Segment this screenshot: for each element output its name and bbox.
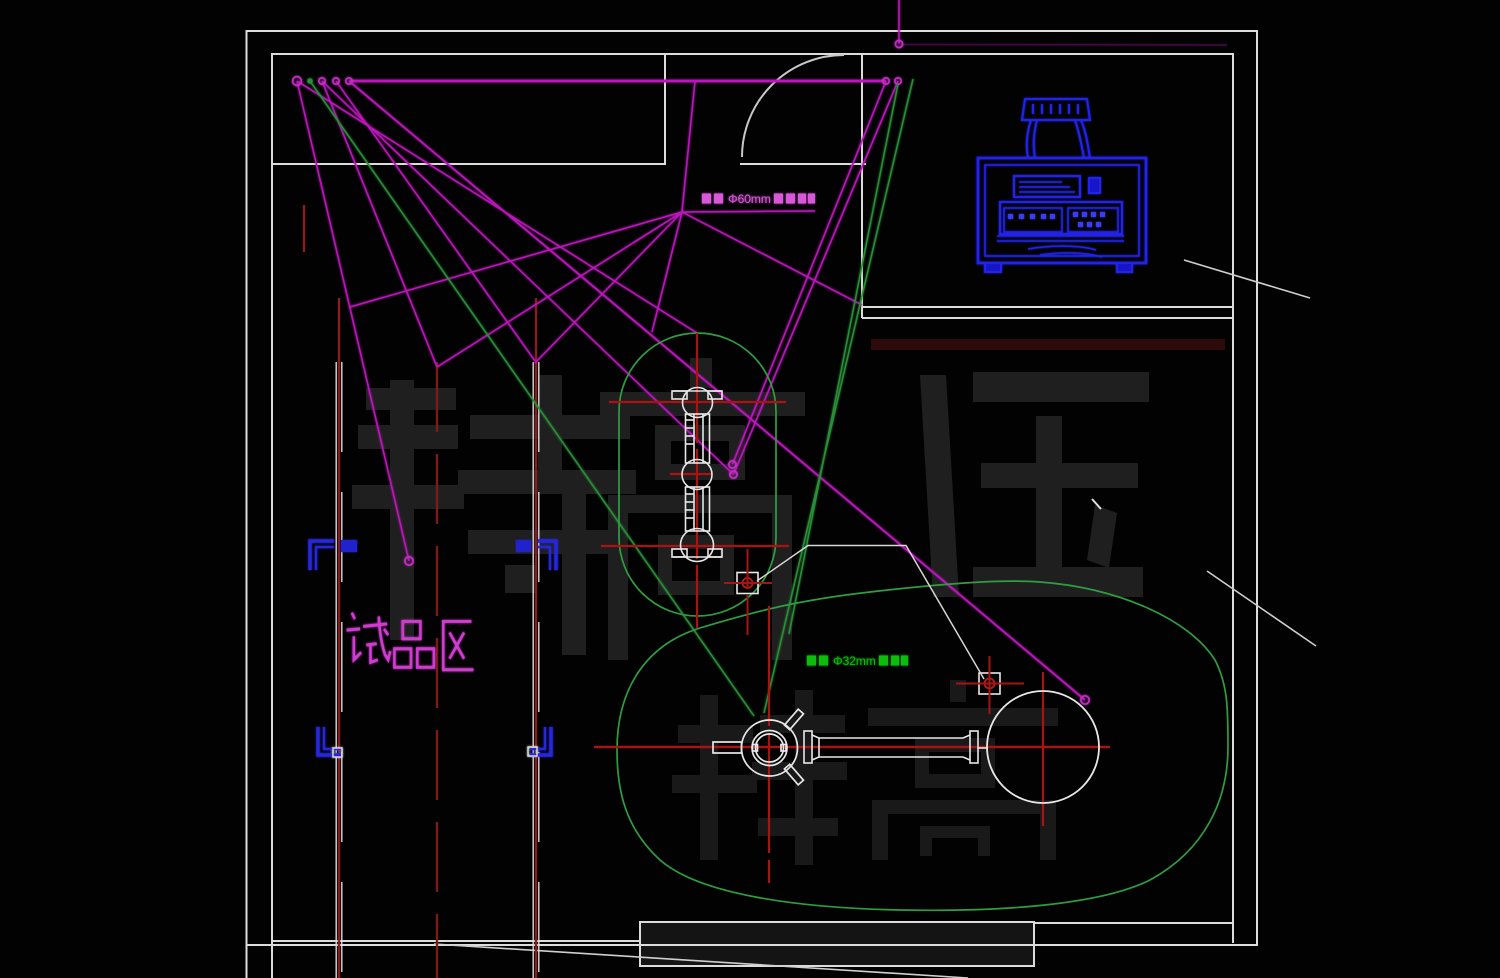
svg-text:Φ60mm: Φ60mm xyxy=(728,192,771,206)
svg-text:Φ32mm: Φ32mm xyxy=(833,654,876,668)
